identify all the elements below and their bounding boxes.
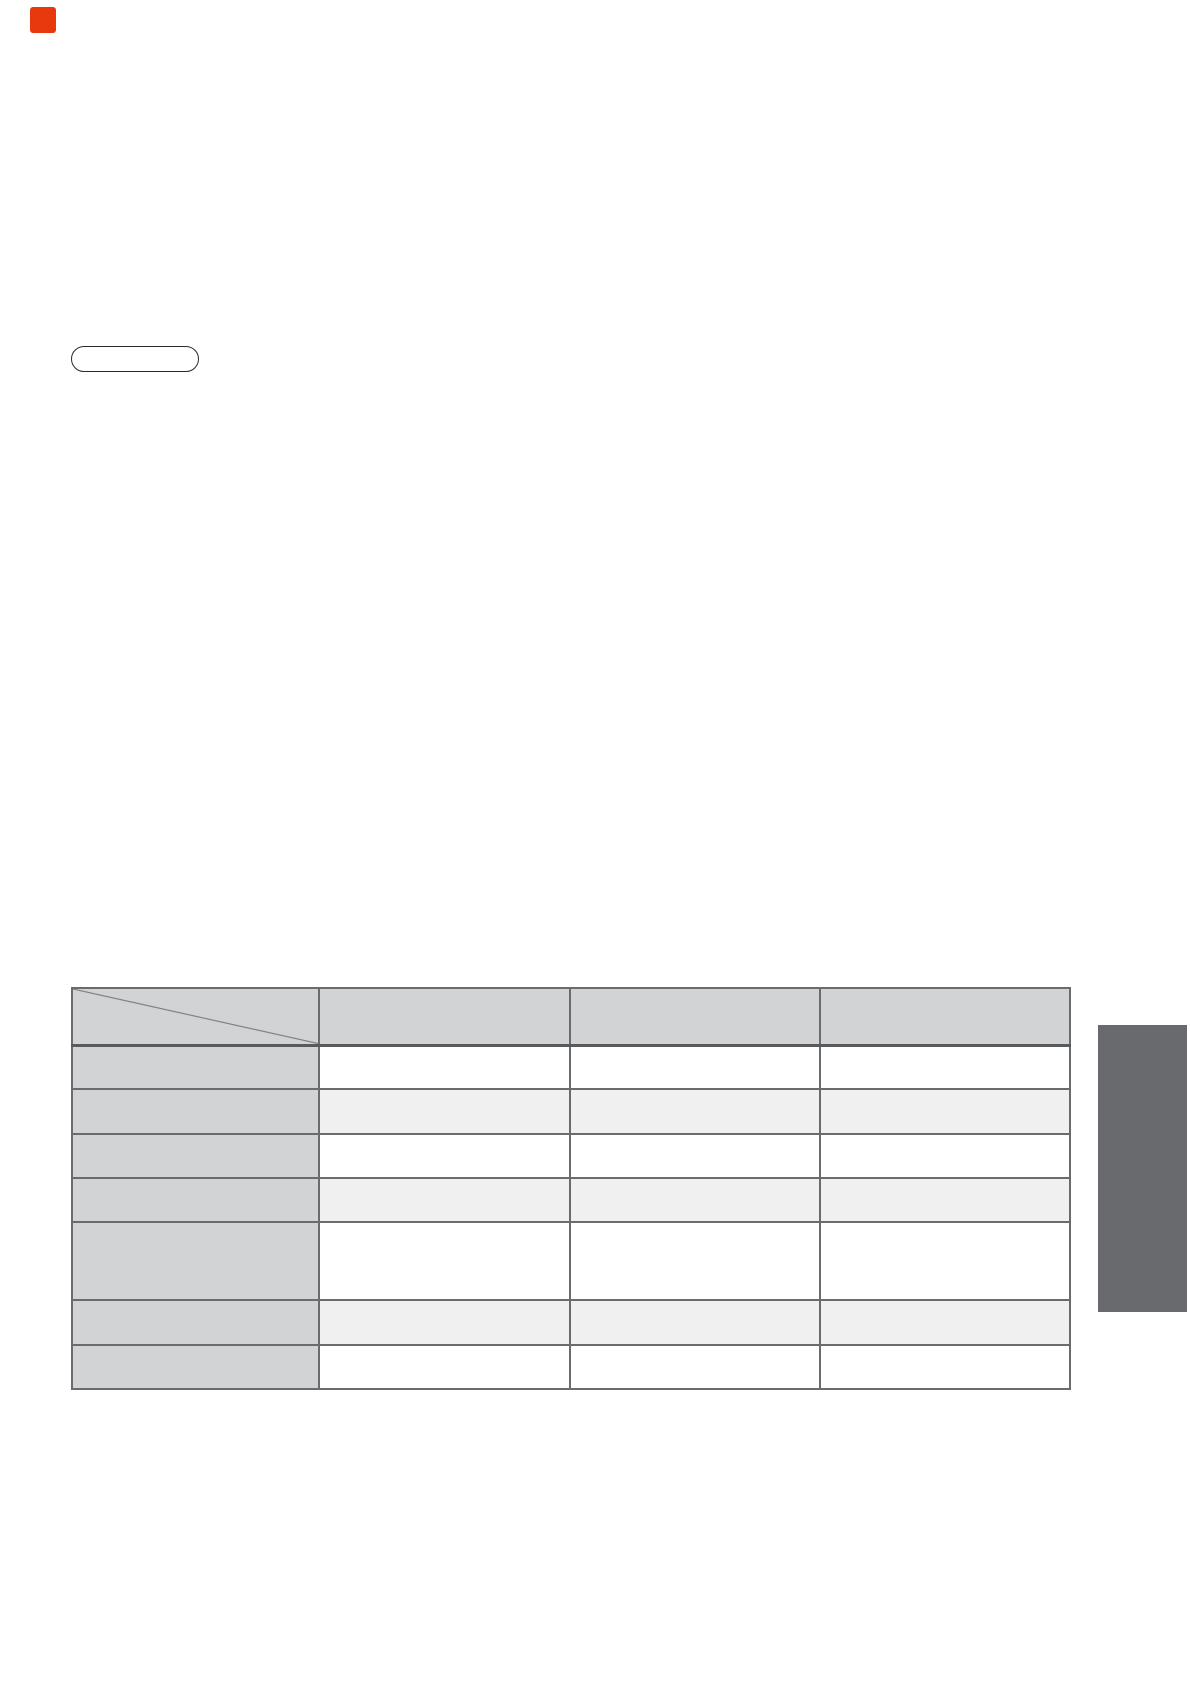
table-row <box>72 1178 1070 1222</box>
table-cell <box>820 1345 1070 1389</box>
row-label-cell <box>72 1045 319 1089</box>
red-marker <box>30 7 56 33</box>
table-cell <box>319 1045 570 1089</box>
table-header-row <box>72 988 1070 1045</box>
table-corner-cell <box>72 988 319 1045</box>
table-cell <box>319 1300 570 1345</box>
column-header <box>570 988 820 1045</box>
row-label-cell <box>72 1300 319 1345</box>
table-row <box>72 1300 1070 1345</box>
row-label-cell <box>72 1178 319 1222</box>
table-cell <box>319 1178 570 1222</box>
table-cell <box>820 1300 1070 1345</box>
table-row <box>72 1134 1070 1178</box>
table-cell <box>570 1300 820 1345</box>
table-cell <box>820 1089 1070 1134</box>
table-cell <box>570 1134 820 1178</box>
table-cell <box>570 1045 820 1089</box>
table-cell <box>319 1134 570 1178</box>
row-label-cell <box>72 1089 319 1134</box>
row-label-cell <box>72 1134 319 1178</box>
table-cell <box>570 1178 820 1222</box>
table-cell <box>570 1345 820 1389</box>
column-header <box>820 988 1070 1045</box>
table-cell <box>820 1045 1070 1089</box>
table-cell <box>319 1089 570 1134</box>
table-row <box>72 1089 1070 1134</box>
table-cell <box>820 1178 1070 1222</box>
table-cell <box>820 1222 1070 1300</box>
section-side-tab <box>1098 1025 1187 1312</box>
table-cell <box>570 1222 820 1300</box>
table-row <box>72 1345 1070 1389</box>
row-label-cell <box>72 1345 319 1389</box>
table-row <box>72 1222 1070 1300</box>
document-page <box>0 0 1190 1684</box>
pill-button-outline <box>71 346 199 372</box>
data-table <box>71 987 1071 1390</box>
table-cell <box>319 1222 570 1300</box>
table-cell <box>820 1134 1070 1178</box>
table-cell <box>570 1089 820 1134</box>
diagonal-slash-line <box>73 989 318 1044</box>
column-header <box>319 988 570 1045</box>
row-label-cell <box>72 1222 319 1300</box>
table-cell <box>319 1345 570 1389</box>
table-row <box>72 1045 1070 1089</box>
